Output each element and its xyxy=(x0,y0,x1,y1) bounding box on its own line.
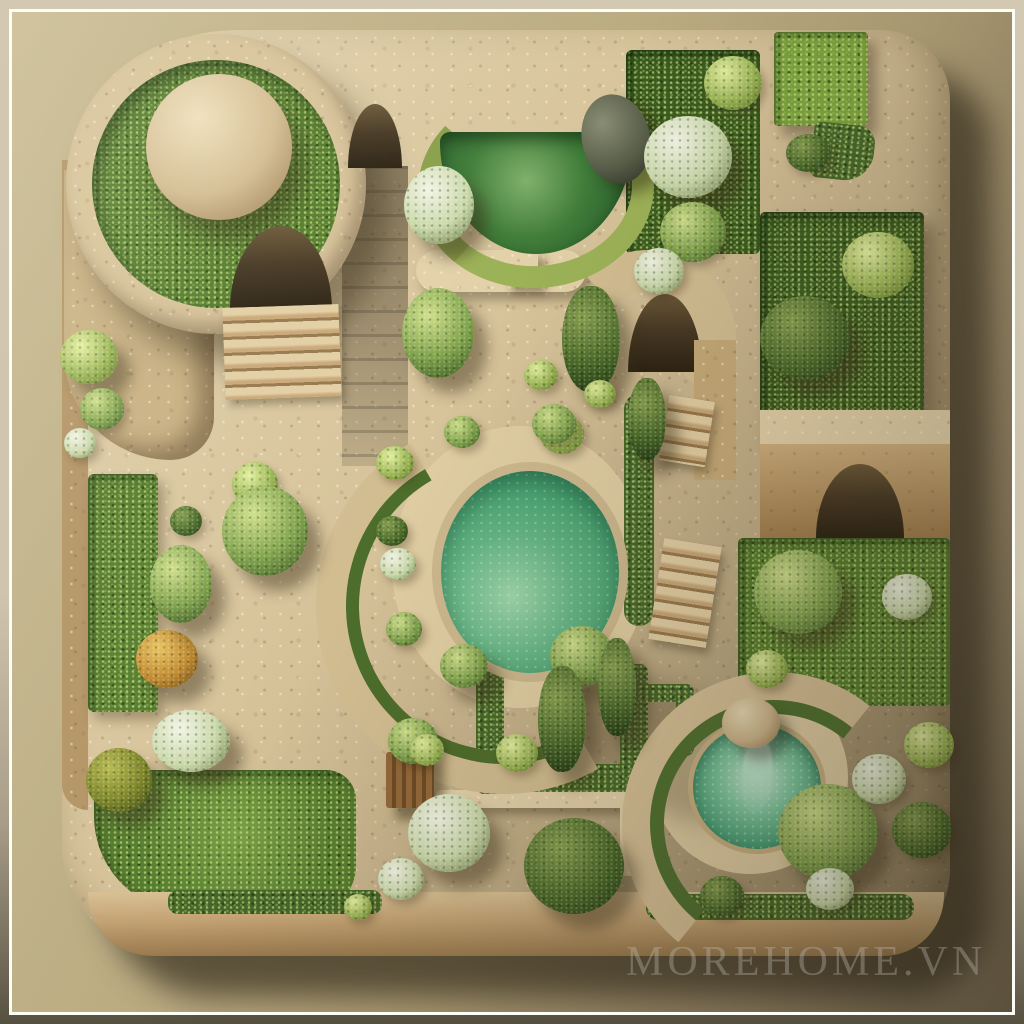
right-block-coping xyxy=(760,410,950,446)
large-bush xyxy=(524,818,624,914)
shrub xyxy=(532,404,576,444)
fountain-mushroom-cap xyxy=(722,698,780,748)
bush xyxy=(892,802,952,858)
flowering-tree xyxy=(404,166,474,244)
raised-moss-plot xyxy=(774,32,868,126)
planter-moss-ball xyxy=(496,734,538,772)
moss-ball xyxy=(584,380,616,408)
moss-patch xyxy=(842,232,914,298)
bush xyxy=(700,876,744,916)
shrub xyxy=(170,506,202,536)
watermark-text: MOREHOME.VN xyxy=(626,938,1016,990)
hedge-column xyxy=(538,666,586,772)
flowering-bush xyxy=(852,754,906,804)
flowering-tree xyxy=(644,116,732,198)
wall-shrub xyxy=(80,388,124,430)
shrub xyxy=(386,612,422,646)
wall-shrub xyxy=(64,428,96,458)
flowering-bush xyxy=(408,794,490,872)
round-tree xyxy=(402,288,474,378)
wall-shrub xyxy=(60,330,118,384)
stone-sphere xyxy=(146,74,292,220)
shrub xyxy=(440,644,488,688)
moss-ball xyxy=(524,360,558,390)
bed-bush xyxy=(754,550,842,634)
cypress-hedge xyxy=(628,378,666,460)
flowering-bush xyxy=(378,858,424,900)
autumn-tree xyxy=(136,630,198,688)
shrub xyxy=(444,416,480,448)
shrub xyxy=(380,548,416,580)
moss-ball xyxy=(410,734,444,766)
large-tree xyxy=(222,486,308,576)
lime-tree xyxy=(704,56,762,110)
topiary-ball xyxy=(86,748,152,812)
shrub xyxy=(376,446,414,480)
hedge-column xyxy=(598,638,636,736)
photo-frame: MOREHOME.VN xyxy=(0,0,1024,1024)
moss-ball xyxy=(344,894,372,920)
flowering-bush xyxy=(806,868,854,910)
flowering-bush xyxy=(634,248,684,294)
tall-cypress-hedge xyxy=(562,286,620,392)
bush xyxy=(904,722,954,768)
flowering-bush xyxy=(152,710,230,772)
dome-tree xyxy=(760,296,850,380)
flowering-bush xyxy=(882,574,932,620)
shrub xyxy=(376,516,408,546)
shrub xyxy=(746,650,788,688)
terrace-staircase xyxy=(222,304,341,400)
tree xyxy=(150,545,212,623)
niche-dome-bush xyxy=(786,134,830,172)
